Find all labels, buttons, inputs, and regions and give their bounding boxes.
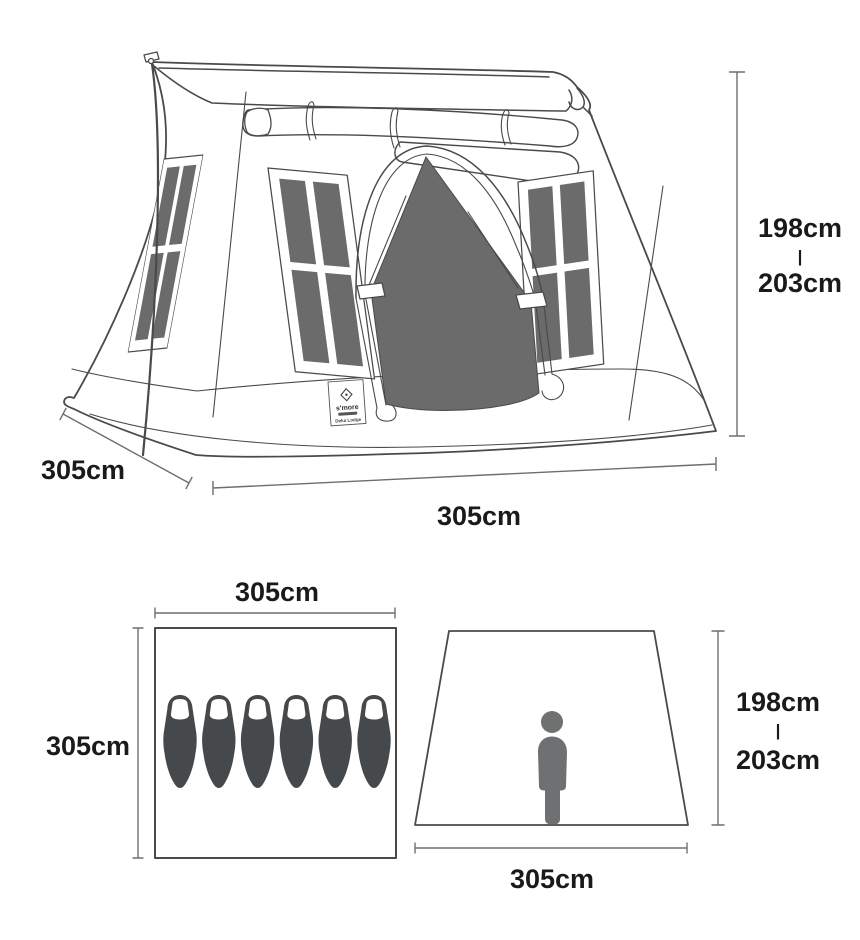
door-tieback-left [357, 283, 385, 299]
person-head [541, 711, 563, 733]
tent-illustration: s'more Deka Lodge [64, 52, 716, 457]
sleeping-bag-icon [202, 695, 235, 788]
elevation-width-dimension-line [415, 843, 687, 854]
width-dimension: 305cm [213, 457, 716, 531]
height-top-label: 198cm [758, 213, 842, 243]
elevation-height-dimension: 198cm | 203cm [712, 631, 821, 825]
elevation-height-bottom-label: 203cm [736, 745, 820, 775]
plan-depth-dimension: 305cm [46, 628, 144, 858]
brand-label: s'more Deka Lodge [328, 380, 366, 426]
sleeping-bag-icon [241, 695, 274, 788]
width-label: 305cm [437, 501, 521, 531]
elevation-width-dimension: 305cm [415, 843, 687, 895]
front-elevation-view: 198cm | 203cm 305cm [415, 631, 820, 894]
sleeping-bag-icon [163, 695, 196, 788]
depth-label: 305cm [41, 455, 125, 485]
plan-width-dimension-line [155, 608, 395, 619]
tent-spec-diagram: s'more Deka Lodge 198cm | 203cm 305cm 30… [0, 0, 860, 940]
window-pane [533, 273, 562, 363]
width-dimension-line [213, 457, 716, 495]
height-bottom-label: 203cm [758, 268, 842, 298]
person-icon [538, 711, 567, 825]
diagram-canvas: s'more Deka Lodge 198cm | 203cm 305cm 30… [0, 0, 860, 940]
elevation-width-label: 305cm [510, 864, 594, 894]
plan-depth-dimension-line [133, 628, 144, 858]
height-dimension-line [729, 72, 745, 436]
plan-depth-label: 305cm [46, 731, 130, 761]
height-separator: | [798, 247, 803, 266]
sleeping-bag-icon [319, 695, 352, 788]
window-pane [565, 268, 594, 358]
elevation-height-top-label: 198cm [736, 687, 820, 717]
plan-width-dimension: 305cm [155, 577, 395, 619]
sleeping-bags [163, 695, 390, 788]
sleeping-bag-icon [357, 695, 390, 788]
sleeping-bag-icon [280, 695, 313, 788]
window-pane [560, 181, 589, 264]
awning-roll-end [245, 108, 271, 135]
person-body [538, 737, 567, 825]
elevation-height-separator: | [776, 721, 781, 740]
height-dimension: 198cm | 203cm [729, 72, 842, 436]
elevation-height-dimension-line [712, 631, 725, 825]
door-tieback-right [516, 292, 547, 309]
perspective-view: s'more Deka Lodge 198cm | 203cm 305cm 30… [41, 52, 842, 531]
floor-plan-view: 305cm 305cm [46, 577, 396, 858]
pole-finial [149, 59, 154, 64]
plan-width-label: 305cm [235, 577, 319, 607]
